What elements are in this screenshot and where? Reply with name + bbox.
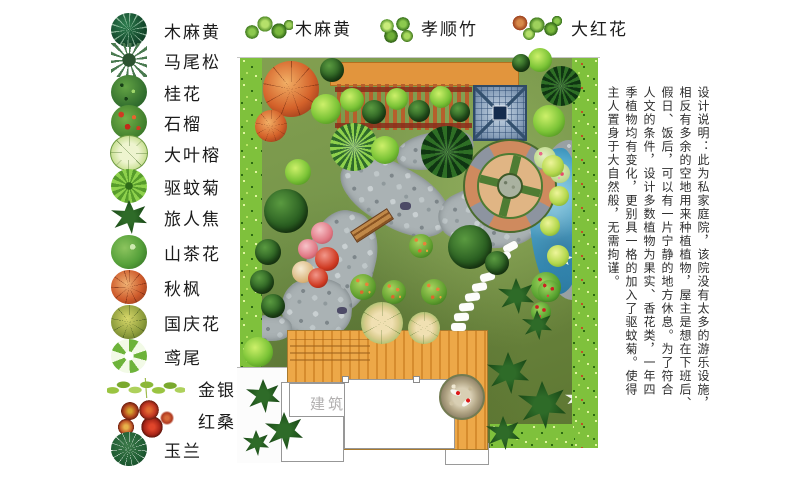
yellow-planting — [542, 155, 564, 177]
ornamental-rock — [337, 307, 347, 314]
design-note: 设计说明：此为私家庭院，该院没有太多的游乐设施， 相反有多余的空地用来种植植物，… — [606, 86, 709, 416]
legend-item-label: 大叶榕 — [164, 141, 221, 166]
hedge-border-left — [240, 58, 262, 367]
koi-pond — [439, 374, 485, 420]
legend-item-label: 国庆花 — [164, 310, 221, 335]
honeysuckle-icon — [107, 378, 185, 398]
dark-planting — [408, 100, 430, 122]
camellia-planting — [538, 280, 560, 302]
dark-planting — [261, 294, 285, 318]
koi-fish — [449, 388, 461, 397]
dark-planting — [255, 239, 281, 265]
building-corner-marker — [413, 376, 420, 383]
plaza-center-mosaic — [497, 173, 523, 199]
masson-pine-icon — [111, 43, 147, 77]
iris-icon — [111, 339, 147, 373]
bright-planting — [528, 48, 552, 72]
fig-planting — [361, 302, 403, 344]
dark-planting — [264, 189, 308, 233]
legend-item-label: 桂花 — [164, 80, 202, 105]
stepping-stone — [454, 313, 469, 322]
legend-item: 山茶花 — [106, 233, 221, 271]
dark-planting — [450, 102, 470, 122]
stepping-stone — [451, 323, 466, 331]
legend-item-label: 孝顺竹 — [421, 15, 478, 40]
bright-planting — [371, 136, 399, 164]
bright-planting — [243, 337, 273, 367]
building-outline — [344, 379, 455, 449]
hedge-bamboo-icon — [377, 16, 417, 44]
pavilion-roof — [473, 85, 527, 141]
design-note-column: 设计说明：此为私家庭院，该院没有太多的游乐设施， — [696, 86, 709, 416]
flower-planting — [421, 279, 447, 305]
legend-item-label: 鸢尾 — [164, 344, 202, 369]
legend-item-label: 木麻黄 — [164, 18, 221, 43]
hedge-border-right — [572, 58, 598, 448]
legend-item-label: 秋枫 — [164, 275, 202, 300]
legend-item-label: 木麻黄 — [295, 15, 352, 40]
legend-item-label: 驱蚊菊 — [164, 174, 221, 199]
dark-planting — [362, 100, 386, 124]
darkspiky-planting — [541, 66, 581, 106]
design-note-column: 假日、饭后，可以有一片宁静的地方休息。为了符合 — [660, 86, 673, 416]
travelers-palm-icon — [111, 200, 147, 234]
design-note-column: 相反有多余的空地用来种植植物，屋主是想在下班后、 — [678, 86, 691, 416]
building-label: 建筑 — [310, 393, 346, 414]
flower-planting — [409, 234, 433, 258]
dark-planting — [485, 251, 509, 275]
flower-planting — [382, 280, 406, 304]
bright-planting — [386, 88, 408, 110]
legend-item-label: 山茶花 — [164, 240, 221, 265]
dark-planting — [250, 270, 274, 294]
large-leaf-ficus-icon — [110, 135, 148, 171]
building-corner-marker — [342, 376, 349, 383]
legend-item-label: 红桑 — [198, 408, 236, 433]
pavilion-finial — [493, 106, 508, 121]
yellow-planting — [547, 245, 569, 267]
hibiscus-icon — [509, 13, 563, 41]
fig-planting — [408, 312, 440, 344]
design-note-column: 人文的条件，设计多数植物为果实、香花类，一年四 — [642, 86, 655, 416]
garden-wall — [330, 62, 519, 86]
bright-planting — [533, 105, 565, 137]
casuarina-cluster-icon — [243, 15, 293, 42]
legend-item-label: 大红花 — [571, 15, 628, 40]
darkspiky-planting — [421, 126, 473, 178]
legend-item-label: 玉兰 — [164, 437, 202, 462]
koi-fish — [461, 397, 473, 408]
legend-item-label: 石榴 — [164, 110, 202, 135]
yellow-planting — [549, 186, 569, 206]
garden-plan: 建筑 — [237, 55, 600, 462]
bright-planting — [285, 159, 311, 185]
design-note-column: 季植物均有变化，更别具一格的加入了驱蚊菊。使得 — [624, 86, 637, 416]
legend-item-label: 旅人焦 — [164, 205, 221, 230]
dark-planting — [320, 58, 344, 82]
legend-item: 玉兰 — [106, 430, 202, 468]
dark-planting — [512, 54, 530, 72]
deck-edge-boards — [290, 339, 370, 361]
bright-planting — [340, 88, 364, 112]
legend-item: 旅人焦 — [106, 198, 221, 236]
stepping-stone — [459, 302, 475, 311]
legend-item-label: 马尾松 — [164, 48, 221, 73]
national-day-flower-icon — [111, 305, 147, 339]
yellow-planting — [540, 216, 560, 236]
flower-planting — [350, 274, 376, 300]
magnolia-icon — [111, 432, 147, 466]
camellia-icon — [111, 235, 147, 269]
red-planting — [308, 268, 328, 288]
autumn-maple-icon — [111, 270, 147, 304]
ornamental-rock — [400, 202, 411, 210]
bright-planting — [311, 94, 341, 124]
orange-planting — [255, 110, 287, 142]
design-note-column: 主人置身于大自然般，无需拘谨。 — [606, 86, 619, 416]
bright-planting — [430, 86, 452, 108]
legend-item: 国庆花 — [106, 303, 221, 341]
legend-item: 秋枫 — [106, 268, 202, 306]
